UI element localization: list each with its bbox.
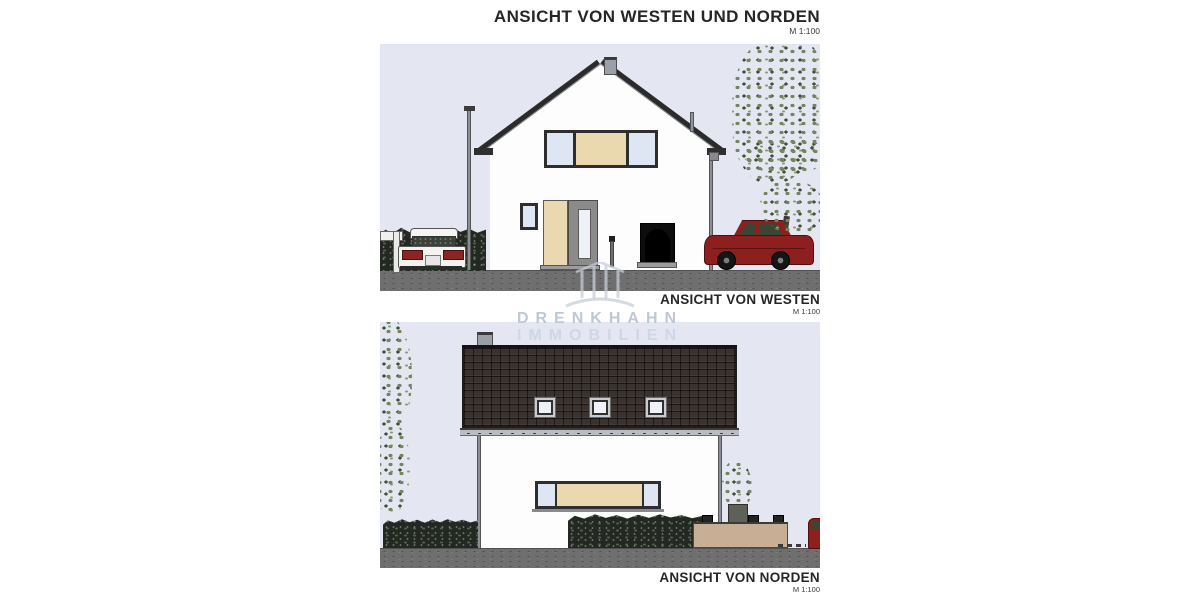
gutter-north xyxy=(460,428,739,436)
roof-window-3 xyxy=(645,397,667,418)
north-elevation-drawing xyxy=(380,322,820,568)
west-elevation-drawing xyxy=(380,44,820,291)
downpipe-elbow-right xyxy=(709,152,719,161)
red-car-wheel-rear xyxy=(771,251,790,270)
gutter-left-west xyxy=(474,148,493,155)
roof-vent-pipe xyxy=(690,112,694,132)
upper-window-right xyxy=(629,133,655,165)
upper-window-band xyxy=(544,130,658,168)
architectural-drawing-sheet: ANSICHT VON WESTEN UND NORDEN M 1:100 xyxy=(0,0,1200,600)
cellar-arch xyxy=(645,229,670,263)
watermark-line1: DRENKHAHN xyxy=(380,310,820,328)
cellar-doorway xyxy=(640,223,675,264)
roof-window-2 xyxy=(589,397,611,418)
red-car-partial-window xyxy=(812,522,820,530)
hedge-left-north xyxy=(383,518,478,548)
roof-window-1 xyxy=(534,397,556,418)
north-view-label: ANSICHT VON NORDEN xyxy=(659,570,820,585)
chimney-west xyxy=(604,57,617,75)
white-car-taillight-left xyxy=(402,250,423,260)
page-scale: M 1:100 xyxy=(789,26,820,36)
curb-dashes xyxy=(778,544,806,547)
tree-foliage-left-lower xyxy=(380,424,410,514)
ground-floor-window-glass xyxy=(523,206,535,227)
upper-window-left xyxy=(547,133,573,165)
garden-wall xyxy=(693,522,788,548)
north-view-scale: M 1:100 xyxy=(793,585,820,594)
page-title: ANSICHT VON WESTEN UND NORDEN xyxy=(494,7,820,27)
ground-floor-window xyxy=(520,203,538,230)
hedge-center-north xyxy=(568,513,703,548)
watermark-line2: IMMOBILIEN xyxy=(380,327,820,345)
red-car-partial xyxy=(808,518,820,549)
north-window-left xyxy=(538,484,555,506)
lamp-cap xyxy=(464,106,475,111)
entrance-side-panel xyxy=(543,200,568,266)
roof-ridge xyxy=(462,345,737,348)
white-car-license-plate xyxy=(425,255,441,266)
white-car-shadow xyxy=(400,266,462,270)
white-car-taillight-right xyxy=(443,250,464,260)
north-window-band xyxy=(535,481,661,509)
window-sill-shadow xyxy=(532,509,664,512)
white-car-body xyxy=(398,246,466,268)
white-car xyxy=(398,228,465,270)
door-glazing-strip xyxy=(578,209,591,259)
ground-strip-north xyxy=(380,548,820,568)
planter-shrub xyxy=(722,460,752,508)
north-window-right xyxy=(644,484,658,506)
drenkhahn-arch-logo xyxy=(556,262,644,314)
red-car-wheel-front xyxy=(717,251,736,270)
upper-tan-panel xyxy=(576,133,626,165)
downpipe-lamp-left xyxy=(467,110,471,270)
entrance-door xyxy=(568,200,598,266)
west-view-label: ANSICHT VON WESTEN xyxy=(660,292,820,307)
red-car-body-line xyxy=(713,248,805,249)
north-tan-panel xyxy=(557,484,642,506)
